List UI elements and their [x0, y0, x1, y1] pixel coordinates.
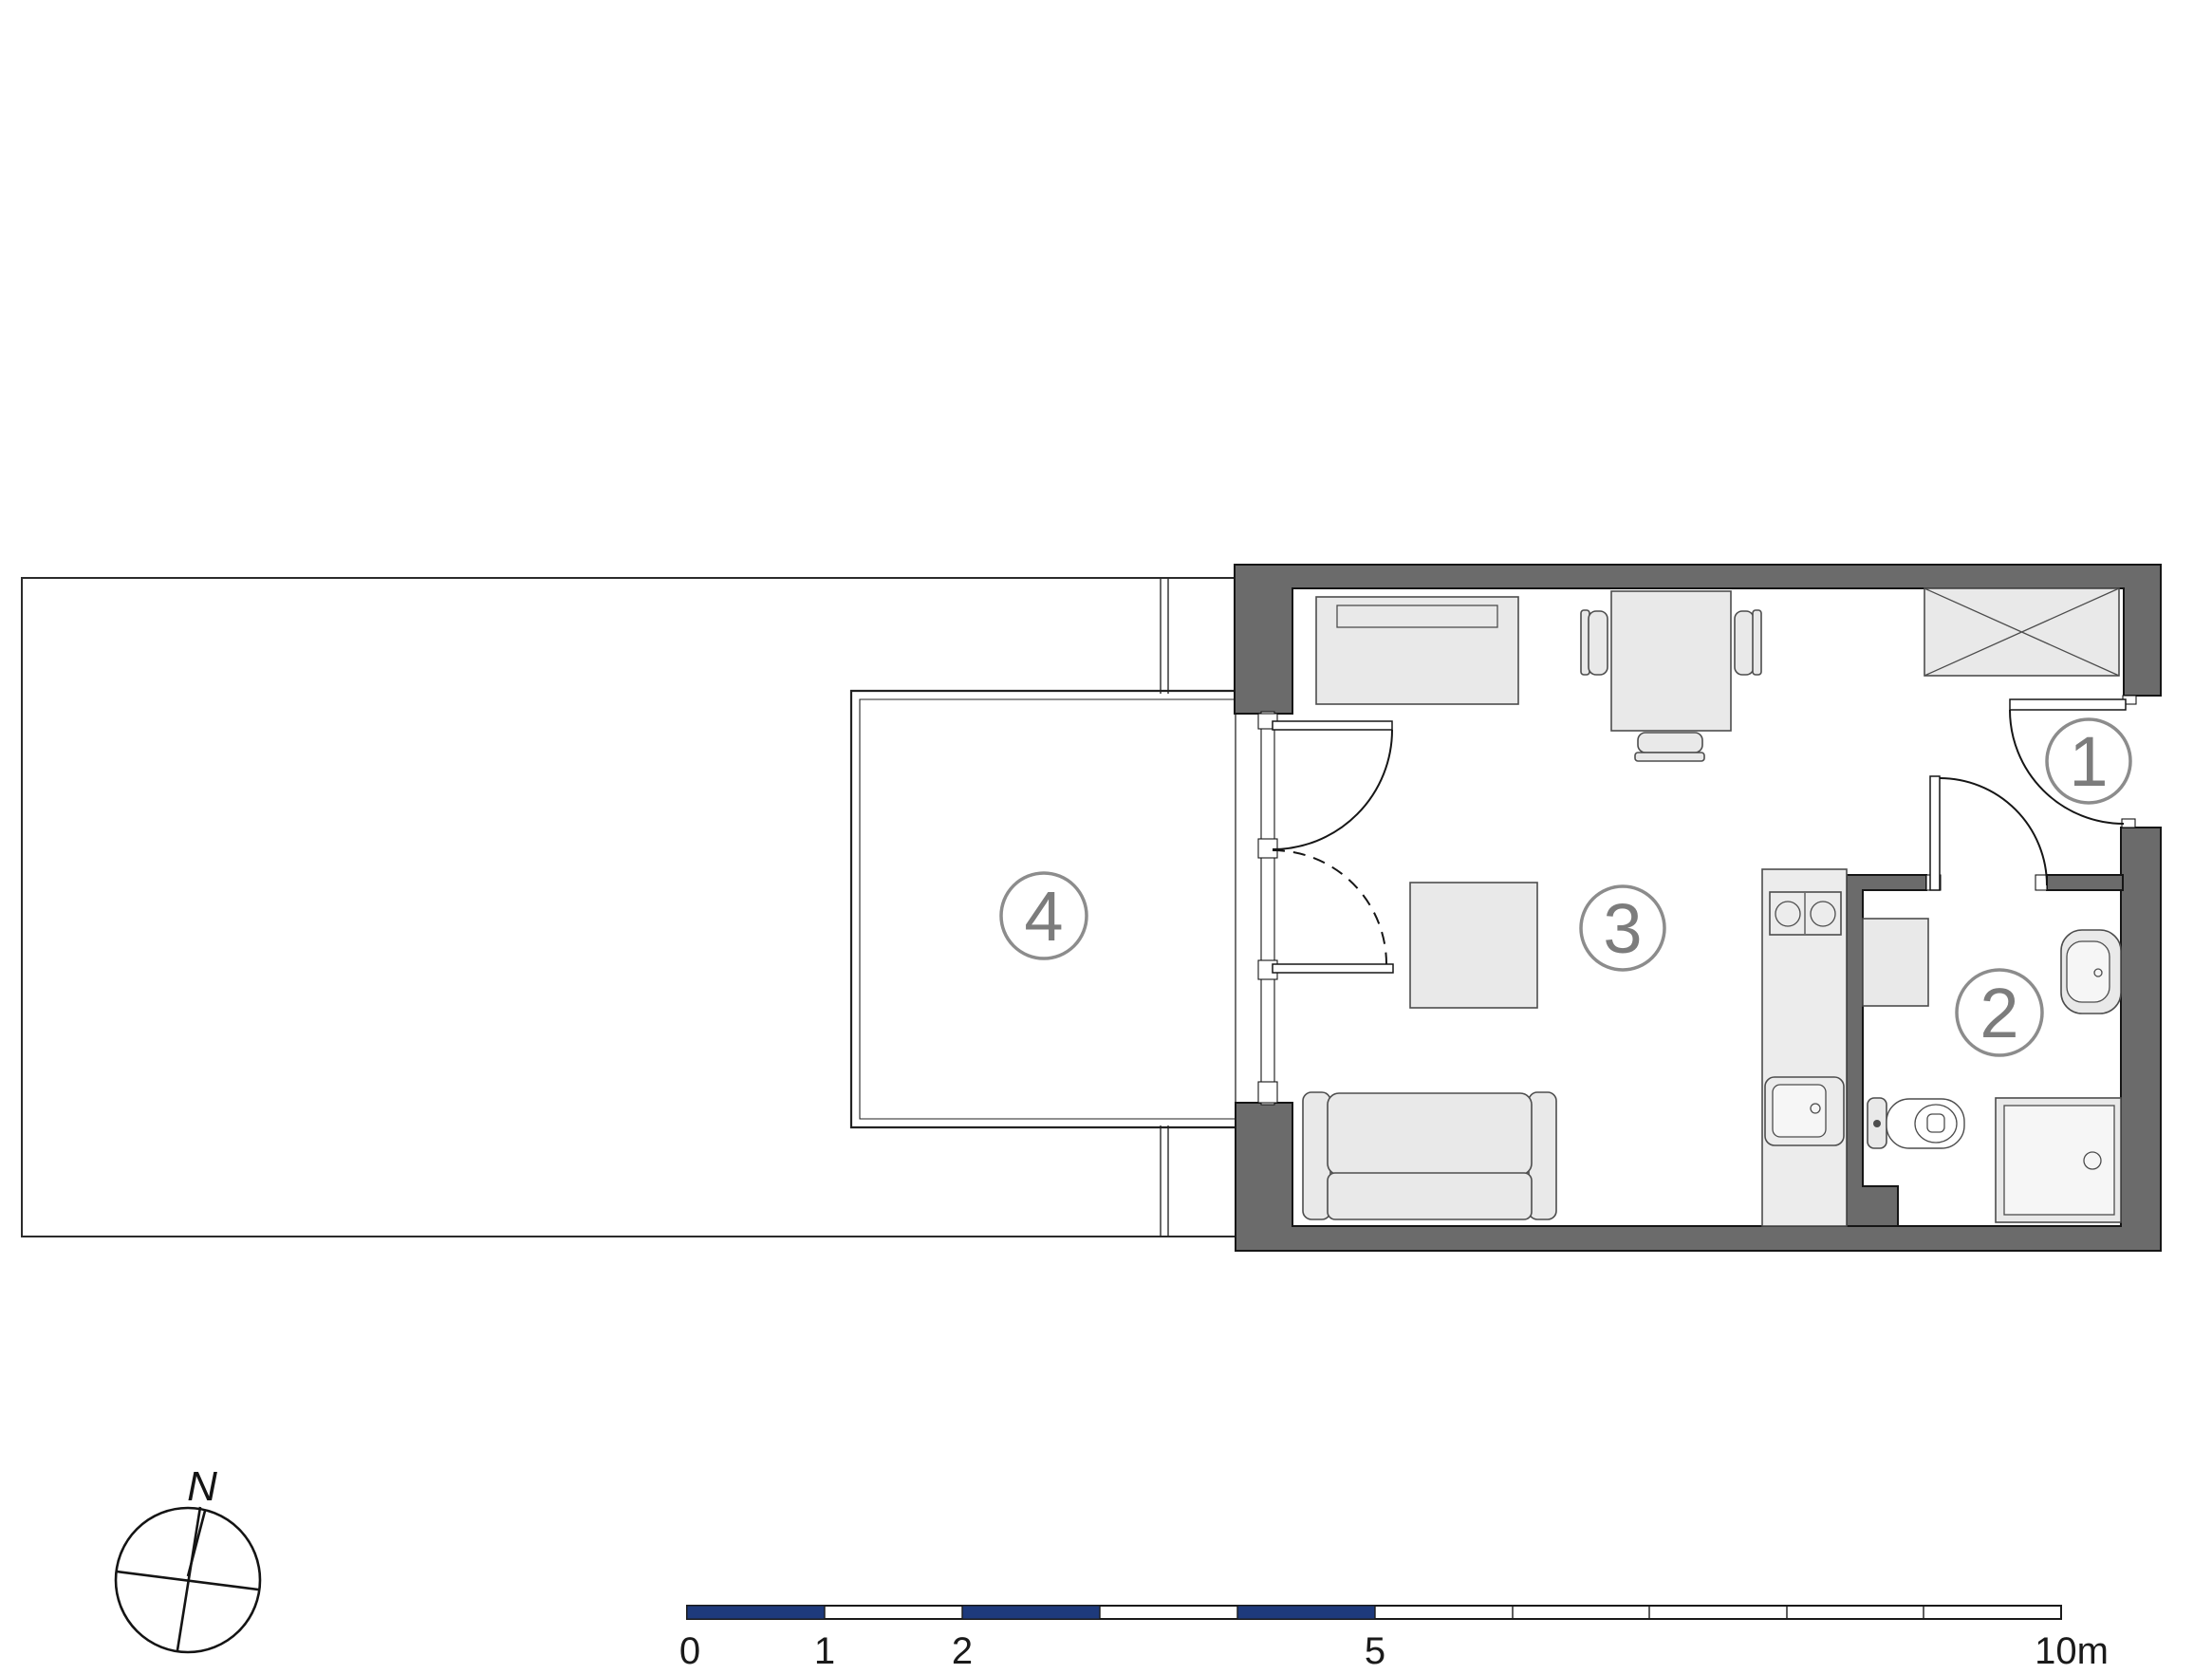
room-labels: 1 2 3 4: [1001, 719, 2130, 1055]
coffee-table: [1410, 883, 1537, 1008]
balcony-door-leaf-active: [1273, 721, 1392, 730]
fence-line-lower: [1161, 1125, 1168, 1237]
room-label-living-room: 3: [1581, 886, 1664, 970]
scale-label-5: 5: [1365, 1630, 1385, 1672]
room-label-bathroom: 2: [1957, 970, 2042, 1055]
dining-table-set: [1581, 591, 1761, 761]
kitchen-sink: [1765, 1077, 1844, 1145]
balcony-door-swing-arc-dashed: [1273, 850, 1386, 964]
kitchenette: [1762, 869, 1847, 1226]
compass-needle-second: [188, 1511, 205, 1576]
toilet: [1868, 1098, 1964, 1148]
scale-label-2: 2: [952, 1630, 973, 1672]
balcony-door-leaf-inactive: [1273, 964, 1393, 973]
window-glazing-frame: [1261, 712, 1274, 1105]
room-label-terrace: 4: [1001, 873, 1087, 958]
kitchen-sink-basin: [1773, 1085, 1826, 1137]
toilet-flush-button: [1873, 1120, 1881, 1127]
window-mullion-bottom: [1258, 1082, 1277, 1103]
wardrobe: [1924, 588, 2119, 676]
scale-segment-2-3: [962, 1606, 1100, 1619]
sofa: [1303, 1092, 1556, 1219]
entrance-frame-bottom: [2122, 819, 2135, 828]
room-4-number: 4: [1024, 877, 1063, 956]
scale-label-0: 0: [679, 1630, 700, 1672]
shower: [1996, 1098, 2121, 1222]
washing-machine: [1863, 919, 1928, 1006]
entrance-door-leaf: [2010, 699, 2126, 710]
north-compass: N: [116, 1463, 260, 1652]
room-3-number: 3: [1603, 889, 1642, 968]
floor-plan-page: 1 2 3 4 N 0 1 2 5 10m: [0, 0, 2212, 1674]
scale-label-1: 1: [814, 1630, 835, 1672]
scale-segment-4-5: [1237, 1606, 1375, 1619]
floor-plan-drawing: 1 2 3 4 N 0 1 2 5 10m: [0, 0, 2212, 1674]
shower-tray: [2004, 1106, 2114, 1215]
room-label-hallway: 1: [2047, 719, 2130, 803]
bathroom-door: [1926, 776, 2047, 890]
chair-right: [1735, 610, 1761, 675]
chair-left: [1581, 610, 1608, 675]
bathroom-door-leaf: [1930, 776, 1940, 890]
sideboard: [1316, 597, 1518, 704]
stove: [1770, 892, 1841, 935]
bathroom-fixtures: [1863, 919, 2121, 1222]
scale-label-10m: 10m: [2035, 1630, 2109, 1672]
toilet-bowl: [1887, 1099, 1964, 1148]
balcony-window-door: [1236, 712, 1393, 1105]
bathroom-door-swing-arc: [1940, 778, 2047, 885]
scale-segment-0-1: [687, 1606, 825, 1619]
north-label: N: [187, 1463, 217, 1510]
balcony-door-swing-arc: [1273, 730, 1392, 849]
bathroom-sink: [2061, 930, 2121, 1014]
sofa-backrest: [1328, 1093, 1532, 1175]
room-1-number: 1: [2069, 722, 2108, 801]
room-2-number: 2: [1980, 974, 2018, 1052]
scale-bar: 0 1 2 5 10m: [679, 1606, 2109, 1672]
sofa-seat: [1328, 1173, 1532, 1219]
bathroom-sink-basin: [2067, 941, 2110, 1002]
sofa-arm-right: [1529, 1092, 1556, 1219]
sofa-arm-left: [1303, 1092, 1330, 1219]
dining-table: [1611, 591, 1731, 731]
bathroom-door-frame-right: [2035, 875, 2047, 890]
wall-bathroom-top-right: [2047, 875, 2123, 890]
fence-line-upper: [1161, 578, 1168, 694]
chair-bottom: [1635, 733, 1704, 761]
